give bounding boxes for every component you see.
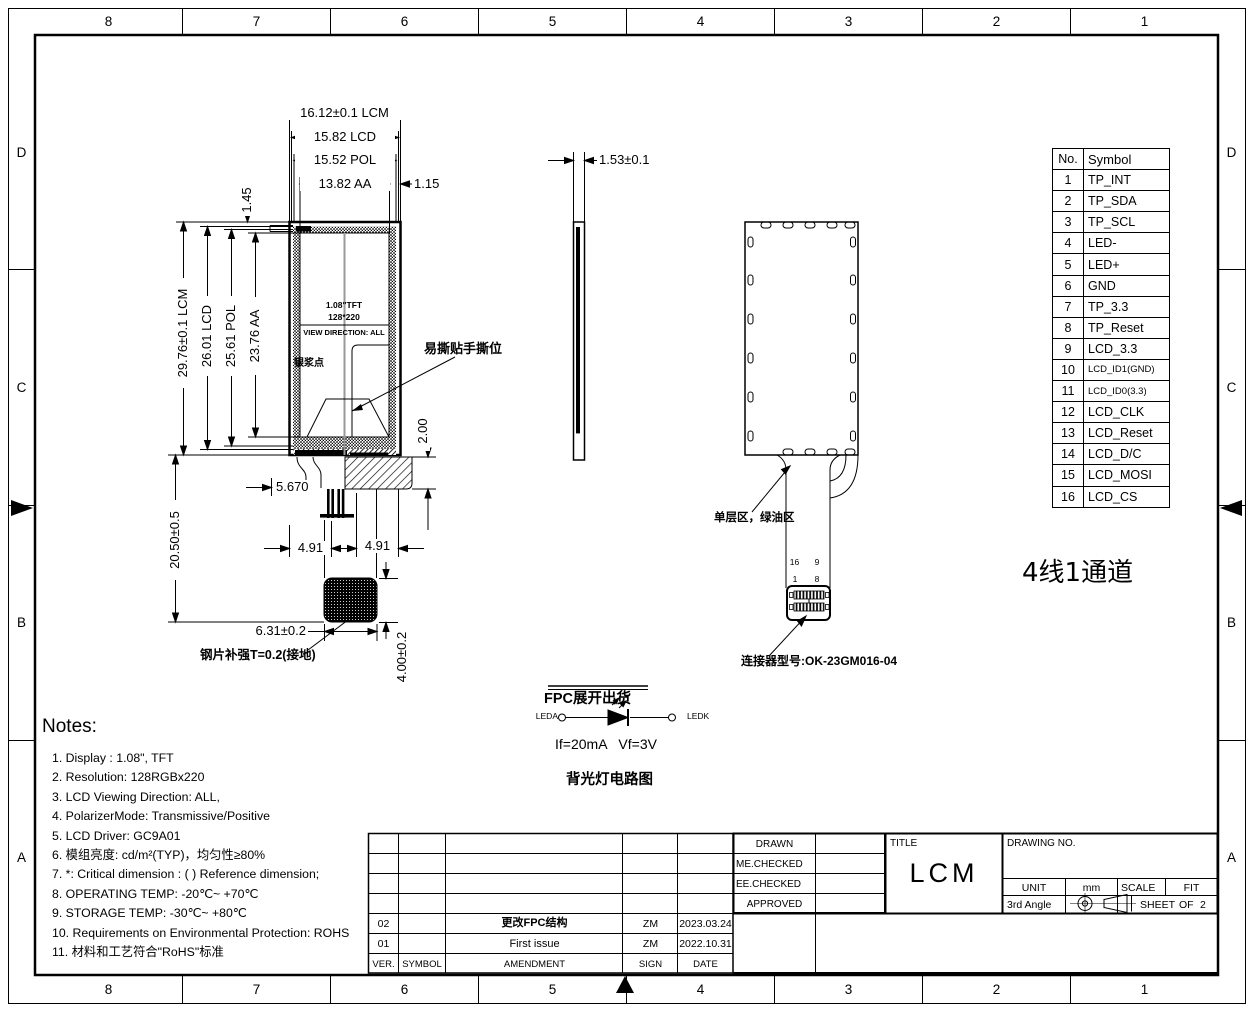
pin-number: 8 [1053,318,1084,338]
pin-number: 15 [1053,465,1084,485]
zone-column-label: 3 [775,975,923,1004]
note-item: 2. Resolution: 128RGBx220 [52,768,372,787]
scale-value: FIT [1165,881,1218,895]
dim-bottom-border: 2.00 [416,411,430,451]
note-item: 9. STORAGE TEMP: -30℃~ +80℃ [52,904,372,923]
pin-number: 14 [1053,444,1084,464]
channel-note: 4线1通道 [1022,558,1133,588]
pin-symbol: TP_3.3 [1084,297,1169,317]
zone-column-label: 7 [183,975,331,1004]
pin-table-row: 13 LCD_Reset [1053,423,1169,444]
pin-table-row: 15 LCD_MOSI [1053,465,1169,486]
rev-header-sign: SIGN [623,958,678,972]
approval-ee-checked-label: EE.CHECKED [736,878,801,892]
zone-column-label: 2 [923,8,1071,35]
zone-band-bottom: 87654321 [35,975,1218,1004]
pin-table-row: 10 LCD_ID1(GND) [1053,360,1169,381]
note-item: 8. OPERATING TEMP: -20℃~ +70℃ [52,885,372,904]
pin-table-row: 11 LCD_ID0(3.3) [1053,381,1169,402]
note-item: 7. *: Critical dimension : ( ) Reference… [52,865,372,884]
unit-label: UNIT [1003,881,1065,895]
tear-tab-label: 易撕贴手撕位 [424,342,502,356]
dim-lcd-width: 15.82 LCD [295,130,395,144]
zone-column-label: 5 [479,8,627,35]
pin-symbol: LCD_ID1(GND) [1084,360,1169,380]
sheet-label: SHEET [1140,898,1175,912]
pin-symbol: LCD_Reset [1084,423,1169,443]
zone-row-label: D [1218,35,1245,270]
pin-table-row: 9 LCD_3.3 [1053,339,1169,360]
pin-number: 10 [1053,360,1084,380]
zone-row-label: B [1218,506,1245,741]
view-direction-label: VIEW DIRECTION: ALL [299,328,389,337]
pin-number: 2 [1053,191,1084,211]
dim-lcd-height: 26.01 LCD [200,296,214,376]
approval-approved-label: APPROVED [734,898,815,912]
zone-column-label: 1 [1071,8,1218,35]
zone-row-label: C [8,270,35,505]
led-spec-label: If=20mA Vf=3V [555,737,657,751]
pin-number: 9 [1053,339,1084,359]
rev-row2-ver: 02 [368,917,399,931]
revision-table-grid [369,834,734,974]
note-item: 1. Display : 1.08", TFT [52,749,372,768]
pin-table-row: 2 TP_SDA [1053,191,1169,212]
dim-lcm-height: 29.76±0.1 LCM [176,278,190,388]
pin-symbol: LCD_CS [1084,487,1169,507]
single-layer-area-label: 单层区，绿油区 [714,511,795,525]
approval-drawn-label: DRAWN [734,838,815,852]
pin-number: 12 [1053,402,1084,422]
pin-symbol: LED- [1084,233,1169,253]
zone-column-label: 5 [479,975,627,1004]
pin-table: No. Symbol 1 TP_INT 2 TP_SDA 3 TP_SCL 4 … [1052,148,1170,508]
zone-column-label: 8 [35,975,183,1004]
sheet-value: 2 [1200,898,1206,912]
pin-symbol: LCD_CLK [1084,402,1169,422]
backlight-caption: 背光灯电路图 [566,773,653,787]
zone-row-label: D [8,35,35,270]
notes-list: 1. Display : 1.08", TFT2. Resolution: 12… [42,749,372,962]
pin-table-header: No. Symbol [1053,149,1169,170]
scale-label: SCALE [1121,881,1155,895]
pin9-label: 9 [812,557,822,567]
rev-header-date: DATE [678,958,733,972]
dim-pol-width: 15.52 POL [295,153,395,167]
pin8-label: 8 [812,574,822,584]
side-view-dimensions [548,152,597,222]
approval-me-checked-label: ME.CHECKED [736,858,803,872]
zone-column-label: 8 [35,8,183,35]
pin-number: 1 [1053,170,1084,190]
pin-table-row: 5 LED+ [1053,254,1169,275]
title-label: TITLE [890,837,917,851]
zone-column-label: 4 [627,975,775,1004]
dim-pol-height: 25.61 POL [224,296,238,376]
pin-symbol: LCD_D/C [1084,444,1169,464]
pin-symbol: LCD_ID0(3.3) [1084,381,1169,401]
pin-symbol: GND [1084,276,1169,296]
pin-table-row: 12 LCD_CLK [1053,402,1169,423]
rev-row1-amendment: First issue [446,937,623,951]
rev-row2-date: 2023.03.24 [678,917,733,931]
rev-row1-ver: 01 [368,937,399,951]
rev-header-amendment: AMENDMENT [446,958,623,972]
zone-column-label: 4 [627,8,775,35]
rev-row2-sign: ZM [623,917,678,931]
zone-band-top: 87654321 [35,8,1218,35]
pin-number: 5 [1053,254,1084,274]
pin16-label: 16 [788,557,801,567]
zone-column-label: 7 [183,8,331,35]
sheet-of-label: OF [1179,898,1194,912]
note-item: 6. 模组亮度: cd/m²(TYP)，均匀性≥80% [52,846,372,865]
zone-column-label: 2 [923,975,1071,1004]
pin-symbol: TP_Reset [1084,318,1169,338]
rev-row2-amendment: 更改FPC结构 [446,916,623,930]
dim-top-border: 1.45 [240,184,254,216]
dim-tail-left: 4.91 [292,541,329,555]
zone-column-label: 1 [1071,975,1218,1004]
note-item: 3. LCD Viewing Direction: ALL, [52,788,372,807]
pin-table-row: 14 LCD_D/C [1053,444,1169,465]
note-item: 4. PolarizerMode: Transmissive/Positive [52,807,372,826]
third-angle-projection-icon [1070,893,1136,914]
rev-row1-sign: ZM [623,937,678,951]
pin-table-rows: 1 TP_INT 2 TP_SDA 3 TP_SCL 4 LED- 5 LED+… [1053,170,1169,507]
dim-fpc-length: 20.50±0.5 [168,500,182,580]
dim-lcm-width: 16.12±0.1 LCM [284,106,405,120]
pin-number: 13 [1053,423,1084,443]
fpc-shipping-note: FPC展开出货 [544,692,631,706]
pin-number: 4 [1053,233,1084,253]
pin-table-row: 3 TP_SCL [1053,212,1169,233]
unit-value: mm [1066,881,1117,895]
dim-thickness: 1.53±0.1 [599,153,650,167]
screen-resolution-label: 128*220 [314,312,374,322]
back-view [745,222,858,656]
side-view [574,222,585,460]
pin-symbol: LCD_MOSI [1084,465,1169,485]
pin-number: 11 [1053,381,1084,401]
pin-table-row: 16 LCD_CS [1053,487,1169,507]
note-item: 11. 材料和工艺符合"RoHS"标准 [52,943,372,962]
dim-aa-width: 13.82 AA [300,177,390,191]
pin-symbol: TP_INT [1084,170,1169,190]
drawing-sheet: 87654321 87654321 DCBA DCBA 16.12±0.1 LC… [0,0,1254,1012]
pin-table-row: 6 GND [1053,276,1169,297]
dim-aa-height: 23.76 AA [248,297,262,375]
led-anode-label: LEDA [532,711,558,722]
rev-header-ver: VER. [368,958,399,972]
pin-symbol: TP_SDA [1084,191,1169,211]
rev-header-symbol: SYMBOL [399,958,445,972]
pin-table-header-no: No. [1053,149,1084,169]
pin-symbol: LED+ [1084,254,1169,274]
dim-tail-right: 4.91 [359,539,396,553]
screen-size-label: 1.08"TFT [314,300,374,310]
notes-section: Notes: 1. Display : 1.08", TFT2. Resolut… [42,716,372,962]
dim-pin-pitch: 5.670 [276,480,309,494]
pin-table-row: 4 LED- [1053,233,1169,254]
drawing-no-label: DRAWING NO. [1007,837,1076,851]
pin1-label: 1 [790,574,800,584]
pin-symbol: LCD_3.3 [1084,339,1169,359]
rev-row1-date: 2022.10.31 [678,937,733,951]
zone-row-label: B [8,506,35,741]
zone-column-label: 6 [331,8,479,35]
dim-offset: 1.15 [414,177,439,191]
pin-number: 16 [1053,487,1084,507]
zone-row-label: A [8,741,35,975]
zone-row-label: C [1218,270,1245,505]
pin-table-row: 8 TP_Reset [1053,318,1169,339]
notes-title: Notes: [42,716,372,738]
zone-column-label: 6 [331,975,479,1004]
pin-number: 7 [1053,297,1084,317]
silver-dot-label: 银浆点 [284,357,334,371]
zone-column-label: 3 [775,8,923,35]
title-value: LCM [886,858,1002,888]
pin-table-row: 1 TP_INT [1053,170,1169,191]
pin-symbol: TP_SCL [1084,212,1169,232]
zone-row-label: A [1218,741,1245,975]
dim-tail-height: 4.00±0.2 [395,624,409,690]
pin-number: 6 [1053,276,1084,296]
pin-number: 3 [1053,212,1084,232]
projection-angle-label: 3rd Angle [1007,898,1051,912]
zone-band-right: DCBA [1218,35,1245,975]
note-item: 5. LCD Driver: GC9A01 [52,827,372,846]
pin-table-header-symbol: Symbol [1084,149,1169,169]
pin-table-row: 7 TP_3.3 [1053,297,1169,318]
dim-tail-width: 6.31±0.2 [240,624,306,638]
note-item: 10. Requirements on Environmental Protec… [52,924,372,943]
zone-band-left: DCBA [8,35,35,975]
connector-model-label: 连接器型号:OK-23GM016-04 [741,654,897,668]
stiffener-label: 钢片补强T=0.2(接地) [200,648,316,662]
led-cathode-label: LEDK [687,711,709,722]
